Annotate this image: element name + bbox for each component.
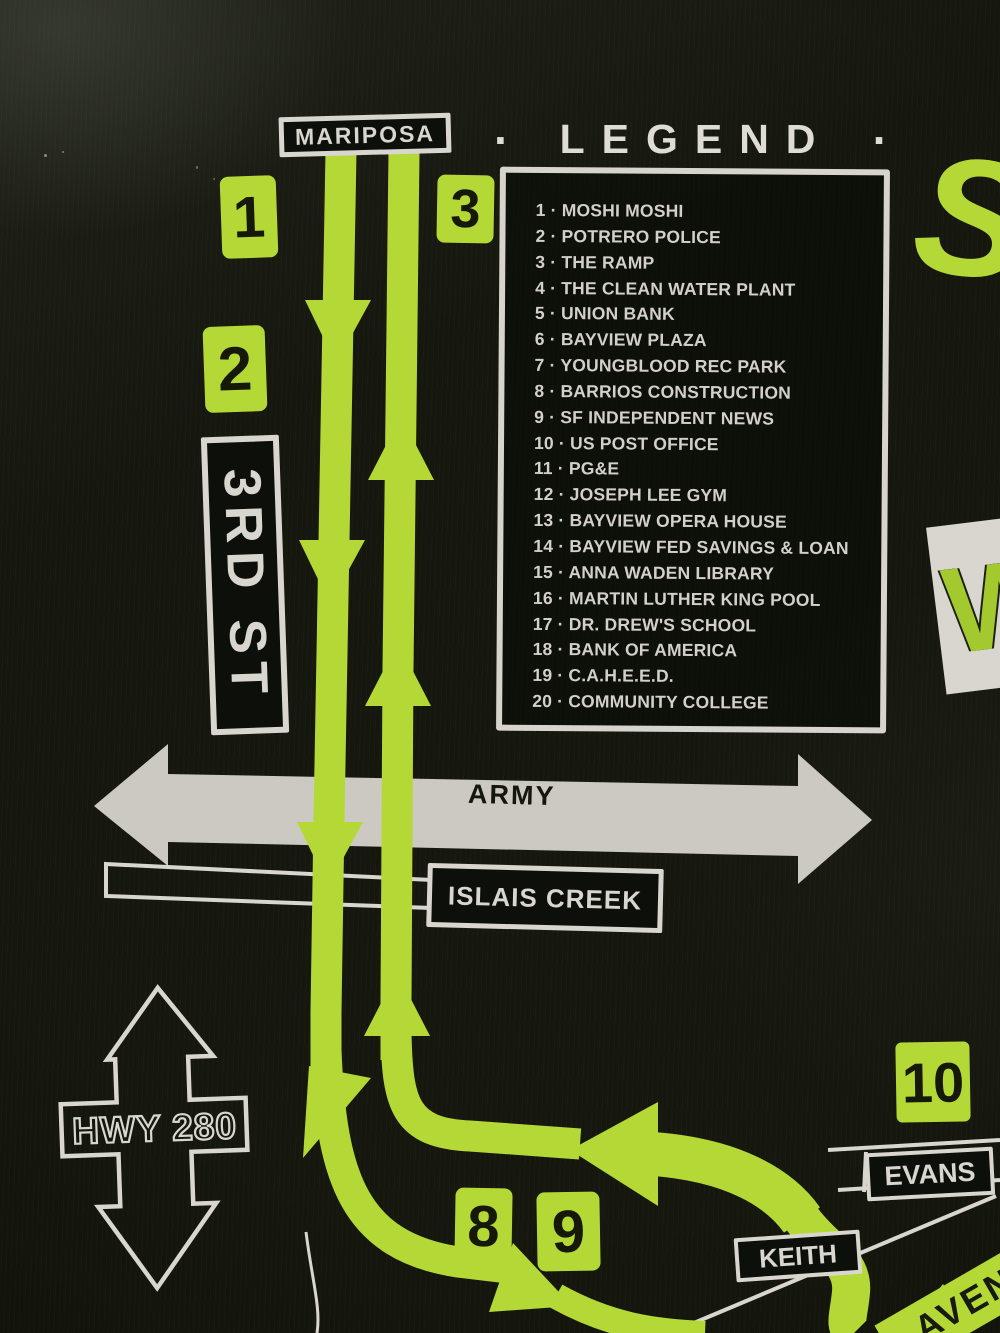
legend-item: 11 · PG&E (534, 456, 876, 484)
legend-item: 14 · BAYVIEW FED SAVINGS & LOAN (533, 534, 875, 562)
legend-item: 6 · BAYVIEW PLAZA (535, 327, 877, 355)
third-st-street-sign: 3RD ST (201, 435, 289, 736)
lint-speck (44, 154, 47, 157)
islais-creek-sign: ISLAIS CREEK (426, 863, 664, 933)
keith-street-sign: KEITH (734, 1230, 863, 1283)
hwy-280-label: HWY 280 (72, 1105, 238, 1152)
westbound-arrowhead (570, 1102, 658, 1206)
mariposa-street-label: MARIPOSA (295, 120, 436, 151)
northbound-arrowhead-1 (368, 416, 434, 480)
third-st-street-label: 3RD ST (211, 468, 279, 703)
legend-item: 17 · DR. DREW'S SCHOOL (533, 611, 875, 639)
legend-item: 4 · THE CLEAN WATER PLANT (535, 275, 877, 303)
stop-marker-8: 8 (454, 1188, 512, 1265)
route-elbow-to-west (396, 1030, 580, 1144)
islais-creek-label: ISLAIS CREEK (448, 880, 643, 916)
southbound-arrowhead-1 (305, 300, 371, 364)
legend-item: 12 · JOSEPH LEE GYM (534, 482, 876, 510)
legend-title: LEGEND (550, 116, 833, 163)
stop-marker-2: 2 (203, 325, 268, 413)
curb-line-bottom-left (306, 1232, 318, 1333)
route-3rd-st-northbound-line (396, 152, 404, 1060)
northbound-arrowhead-3 (364, 972, 430, 1036)
evans-street-label: EVANS (884, 1156, 977, 1192)
legend-item: 2 · POTRERO POLICE (535, 224, 877, 252)
route-wide-band-southeast (654, 1154, 802, 1220)
legend-item: 15 · ANNA WADEN LIBRARY (533, 560, 875, 588)
legend-item: 16 · MARTIN LUTHER KING POOL (533, 586, 875, 614)
legend-item: 1 · MOSHI MOSHI (536, 198, 878, 226)
lint-speck (196, 166, 198, 169)
keith-street-label: KEITH (758, 1238, 838, 1274)
legend-item-list: 1 · MOSHI MOSHI2 · POTRERO POLICE3 · THE… (502, 173, 884, 718)
stop-marker-10: 10 (895, 1041, 970, 1122)
lint-speck (213, 178, 215, 180)
army-street-label: ARMY (468, 779, 556, 812)
legend-right-dot: · (873, 130, 888, 150)
lint-speck (62, 151, 64, 153)
legend-item: 13 · BAYVIEW OPERA HOUSE (533, 508, 875, 536)
legend-item: 10 · US POST OFFICE (534, 430, 876, 458)
evans-street-sign: EVANS (865, 1147, 995, 1202)
legend-item: 7 · YOUNGBLOOD REC PARK (534, 353, 876, 381)
route-bottom-continuation (556, 1296, 705, 1333)
stop-marker-3: 3 (436, 175, 494, 244)
legend-box: 1 · MOSHI MOSHI2 · POTRERO POLICE3 · THE… (496, 167, 890, 734)
northbound-arrowhead-2 (365, 642, 431, 706)
legend-title-row: · LEGEND · (494, 116, 888, 163)
legend-item: 18 · BANK OF AMERICA (533, 637, 875, 665)
southbound-arrowhead-2 (299, 540, 365, 604)
legend-item: 8 · BARRIOS CONSTRUCTION (534, 379, 876, 407)
legend-item: 5 · UNION BANK (535, 301, 877, 329)
route-3rd-st-southbound-line (326, 152, 341, 1068)
legend-left-dot: · (494, 130, 509, 150)
tshirt-map-print: HWY 280 (0, 0, 1000, 1333)
stop-marker-1: 1 (220, 175, 279, 259)
legend-item: 3 · THE RAMP (535, 250, 877, 278)
legend-item: 9 · SF INDEPENDENT NEWS (534, 405, 876, 433)
mariposa-street-sign: MARIPOSA (279, 113, 452, 157)
legend-item: 20 · COMMUNITY COLLEGE (532, 689, 874, 717)
logo-letter-fragment: W (936, 529, 1000, 682)
legend-item: 19 · C.A.H.E.E.D. (532, 663, 874, 691)
army-street-double-arrow (94, 744, 872, 884)
stop-marker-9: 9 (536, 1191, 600, 1271)
